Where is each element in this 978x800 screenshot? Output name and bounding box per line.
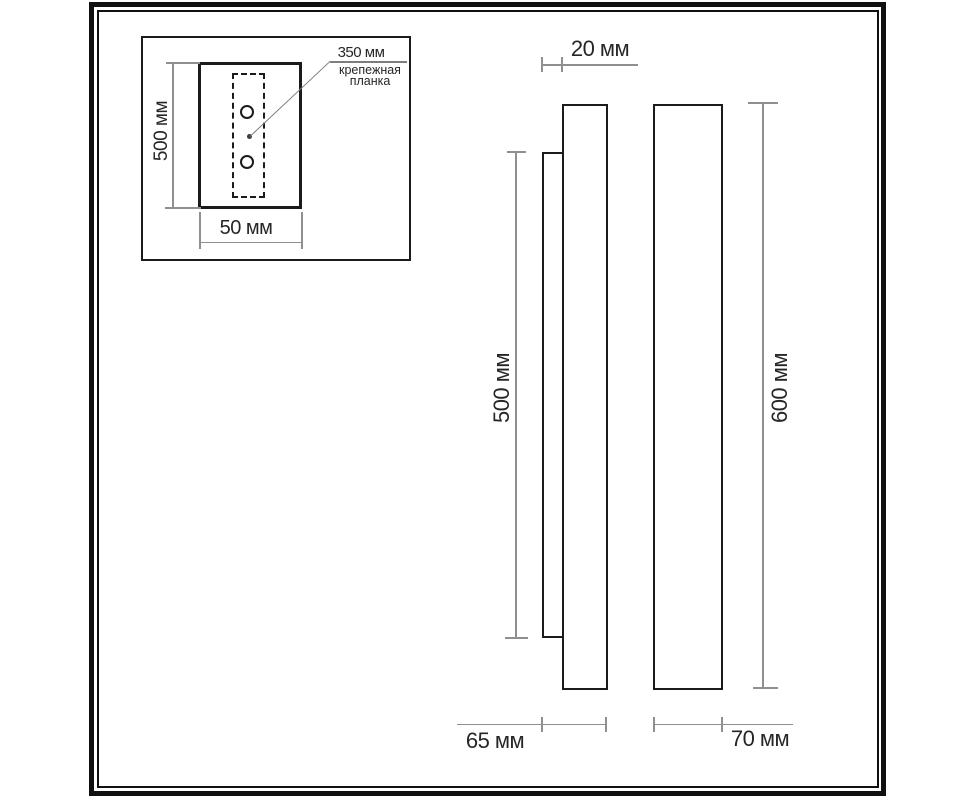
plate-depth-value: 20 мм <box>560 38 640 60</box>
body-width-value: 70 мм <box>720 728 800 750</box>
mounting-plate-inset: 350 мм крепежная планка 500 мм 50 мм <box>141 36 411 261</box>
strip-length-value: 350 мм <box>321 45 401 60</box>
dimension-tick <box>605 717 607 732</box>
dimension-tick <box>541 717 543 732</box>
dimension-tick <box>165 207 201 208</box>
dimension-tick <box>753 687 778 689</box>
total-depth-value: 65 мм <box>455 730 535 752</box>
dimension-line <box>515 152 517 638</box>
dimension-tick <box>507 151 526 153</box>
side-view-body <box>562 104 608 690</box>
dimension-line <box>762 103 764 689</box>
dimension-tick <box>653 717 655 732</box>
dimension-tick <box>505 637 528 639</box>
side-view-mounting-plate <box>542 152 562 638</box>
dimension-line <box>542 64 638 66</box>
body-height-value: 600 мм <box>769 348 791 428</box>
dimension-tick <box>748 102 778 104</box>
dimension-tick <box>541 57 543 72</box>
dimension-line <box>653 724 793 726</box>
dimension-line <box>172 63 173 208</box>
technical-drawing-canvas: 350 мм крепежная планка 500 мм 50 мм 20 … <box>0 0 978 800</box>
extension-line <box>301 212 302 249</box>
dimension-line <box>457 724 607 726</box>
extension-line <box>199 212 200 249</box>
front-view-body <box>653 104 723 690</box>
mounting-hole-top-icon <box>240 105 254 119</box>
mounting-hole-bottom-icon <box>240 155 254 169</box>
inset-height-value: 500 мм <box>152 93 172 169</box>
dimension-line <box>199 242 303 243</box>
dimension-tick <box>166 62 200 63</box>
plate-height-value: 500 мм <box>491 348 513 428</box>
inset-width-value: 50 мм <box>216 219 276 238</box>
strip-caption-line2: планка <box>330 76 410 87</box>
strip-caption: крепежная планка <box>330 65 410 86</box>
